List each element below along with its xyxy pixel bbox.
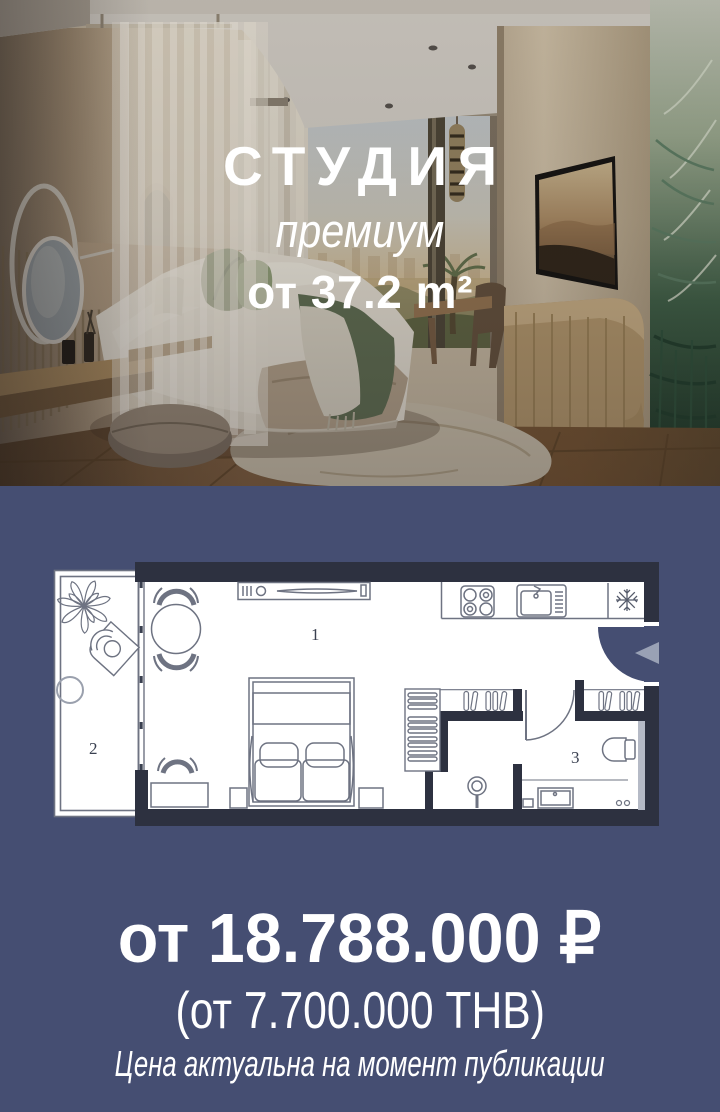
svg-text:1: 1 <box>311 625 320 644</box>
svg-text:3: 3 <box>571 748 580 767</box>
svg-text:2: 2 <box>89 739 98 758</box>
